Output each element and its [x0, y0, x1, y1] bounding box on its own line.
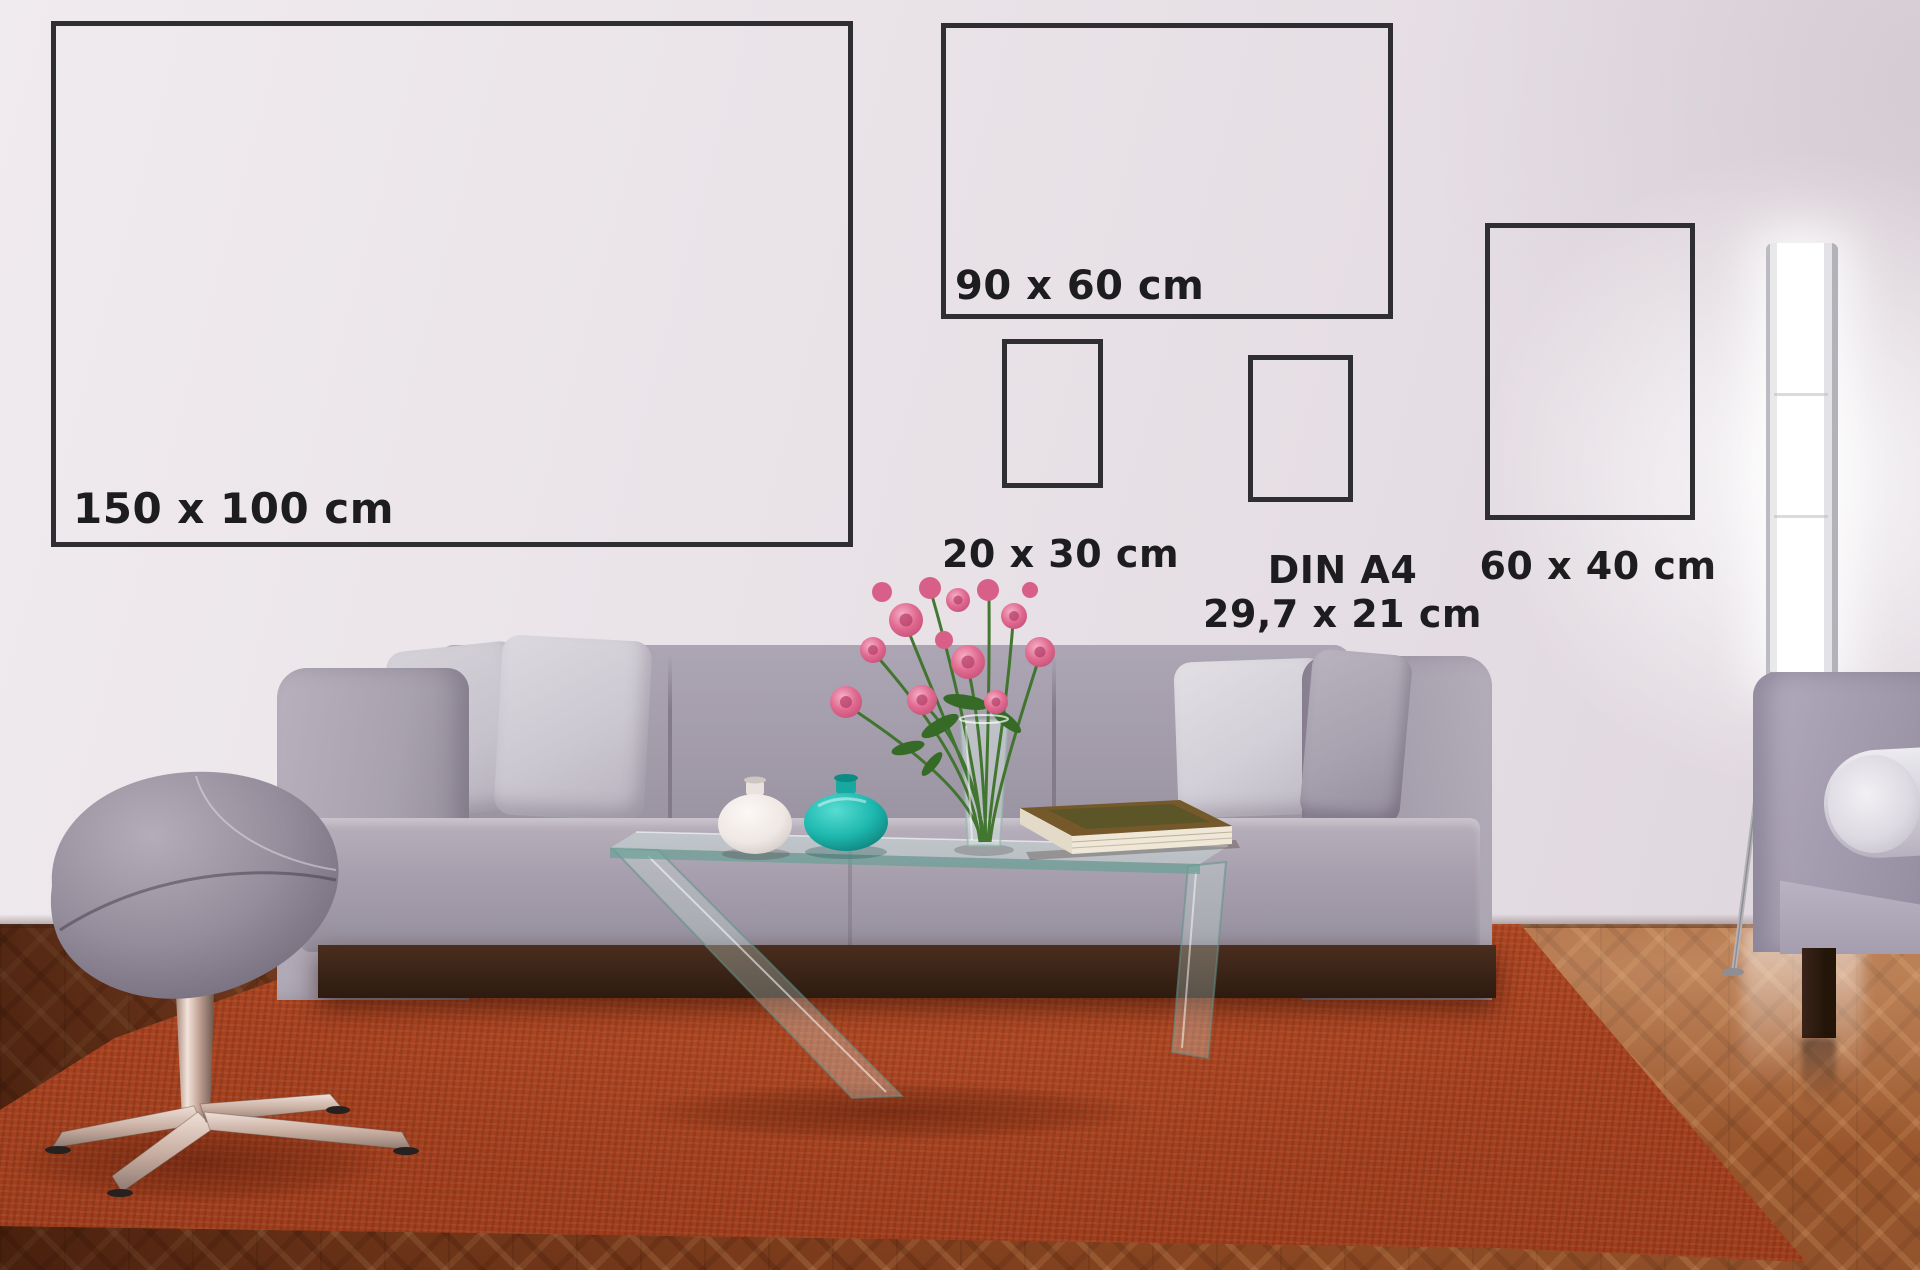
sofa-seam [1052, 655, 1056, 835]
sofa-seat-seam [848, 826, 852, 946]
size-label-line2: 29,7 x 21 cm [1203, 592, 1482, 636]
size-frame-60x40 [1485, 223, 1695, 520]
sofa-pillow [1299, 648, 1413, 826]
size-label-din-a4: DIN A429,7 x 21 cm [1203, 548, 1482, 636]
living-room-poster-size-mockup: 150 x 100 cm90 x 60 cm20 x 30 cmDIN A429… [0, 0, 1920, 1270]
size-label-150x100: 150 x 100 cm [73, 485, 394, 534]
size-label-90x60: 90 x 60 cm [955, 263, 1204, 309]
sofa-plinth [318, 945, 1496, 998]
size-label-line: 90 x 60 cm [955, 263, 1204, 309]
sofa-seat [300, 818, 1480, 952]
lamp-segment-line [1774, 393, 1828, 396]
lamp-segment-line [1774, 515, 1828, 518]
size-frame-20x30 [1002, 339, 1103, 488]
side-sofa-leg-reflection [1802, 1038, 1836, 1108]
size-label-20x30: 20 x 30 cm [942, 532, 1179, 576]
size-label-line: 150 x 100 cm [73, 485, 394, 534]
size-label-line: 60 x 40 cm [1479, 544, 1716, 588]
size-label-60x40: 60 x 40 cm [1479, 544, 1716, 588]
sofa-pillow [493, 634, 652, 822]
size-frame-din-a4 [1248, 355, 1353, 502]
size-label-line: 20 x 30 cm [942, 532, 1179, 576]
side-sofa-leg [1802, 948, 1836, 1038]
floor-lamp [1766, 243, 1838, 679]
size-label-line: DIN A4 [1203, 548, 1482, 592]
sofa-seam [668, 655, 672, 835]
size-frame-150x100 [51, 21, 853, 547]
